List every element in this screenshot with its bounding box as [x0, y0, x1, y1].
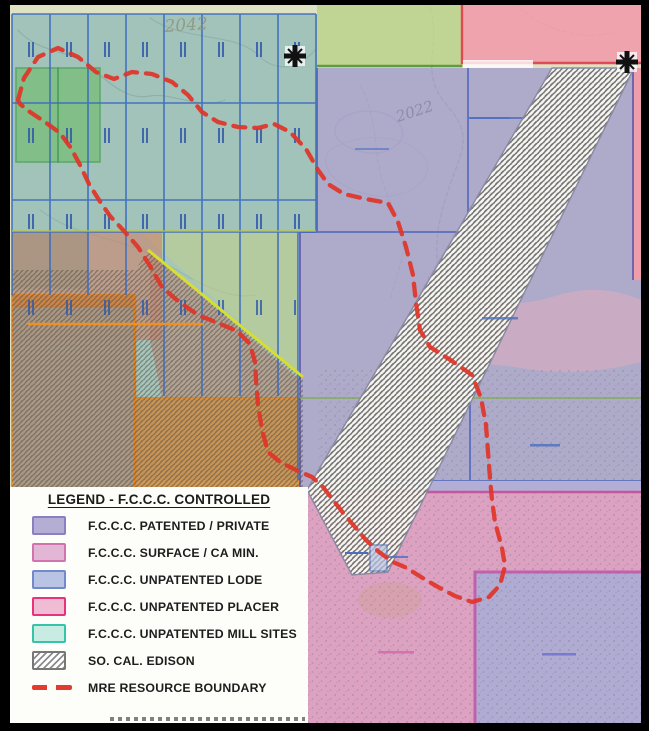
legend-row-surface: F.C.C.C. SURFACE / CA MIN.	[10, 539, 308, 566]
legend-row-edison: SO. CAL. EDISON	[10, 647, 308, 674]
surface-ca-min-swatch	[32, 543, 66, 562]
swatch-wrap	[32, 651, 74, 670]
green-region-top	[317, 5, 463, 67]
legend-label: F.C.C.C. UNPATENTED PLACER	[88, 600, 279, 614]
swatch-wrap	[32, 685, 74, 690]
elevation-label-2042: 2042	[163, 14, 209, 37]
swatch-wrap	[32, 543, 74, 562]
mre-boundary-dash-swatch	[32, 685, 72, 690]
so-cal-edison-hatch-swatch	[32, 651, 66, 670]
legend-title: LEGEND - F.C.C.C. CONTROLLED	[10, 492, 308, 507]
section-corner-marker-nw	[284, 45, 306, 67]
legend-row-placer: F.C.C.C. UNPATENTED PLACER	[10, 593, 308, 620]
legend-box: LEGEND - F.C.C.C. CONTROLLED F.C.C.C. PA…	[10, 487, 308, 723]
legend-label: F.C.C.C. UNPATENTED MILL SITES	[88, 627, 297, 641]
legend-label: F.C.C.C. UNPATENTED LODE	[88, 573, 262, 587]
swatch-wrap	[32, 597, 74, 616]
legend-row-mill-sites: F.C.C.C. UNPATENTED MILL SITES	[10, 620, 308, 647]
map-screenshot: 2042 2022 LEGEND - F.C.C.C. CONTROLLED F…	[0, 0, 649, 731]
cutoff-text-row	[110, 717, 305, 721]
section-corner-marker-ne	[616, 51, 638, 73]
swatch-wrap	[32, 624, 74, 643]
legend-label: SO. CAL. EDISON	[88, 654, 195, 668]
legend-row-mre: MRE RESOURCE BOUNDARY	[10, 674, 308, 701]
legend-label: MRE RESOURCE BOUNDARY	[88, 681, 267, 695]
placer-region-topright	[462, 5, 641, 63]
white-gap	[463, 60, 533, 68]
swatch-wrap	[32, 516, 74, 535]
legend-label: F.C.C.C. PATENTED / PRIVATE	[88, 519, 269, 533]
unpatented-mill-sites-swatch	[32, 624, 66, 643]
legend-row-patented: F.C.C.C. PATENTED / PRIVATE	[10, 512, 308, 539]
legend-row-lode: F.C.C.C. UNPATENTED LODE	[10, 566, 308, 593]
unpatented-lode-swatch	[32, 570, 66, 589]
tan-wash	[358, 582, 422, 618]
legend-label: F.C.C.C. SURFACE / CA MIN.	[88, 546, 259, 560]
unpatented-placer-swatch	[32, 597, 66, 616]
patented-private-swatch	[32, 516, 66, 535]
placer-strip-right	[634, 68, 641, 280]
swatch-wrap	[32, 570, 74, 589]
